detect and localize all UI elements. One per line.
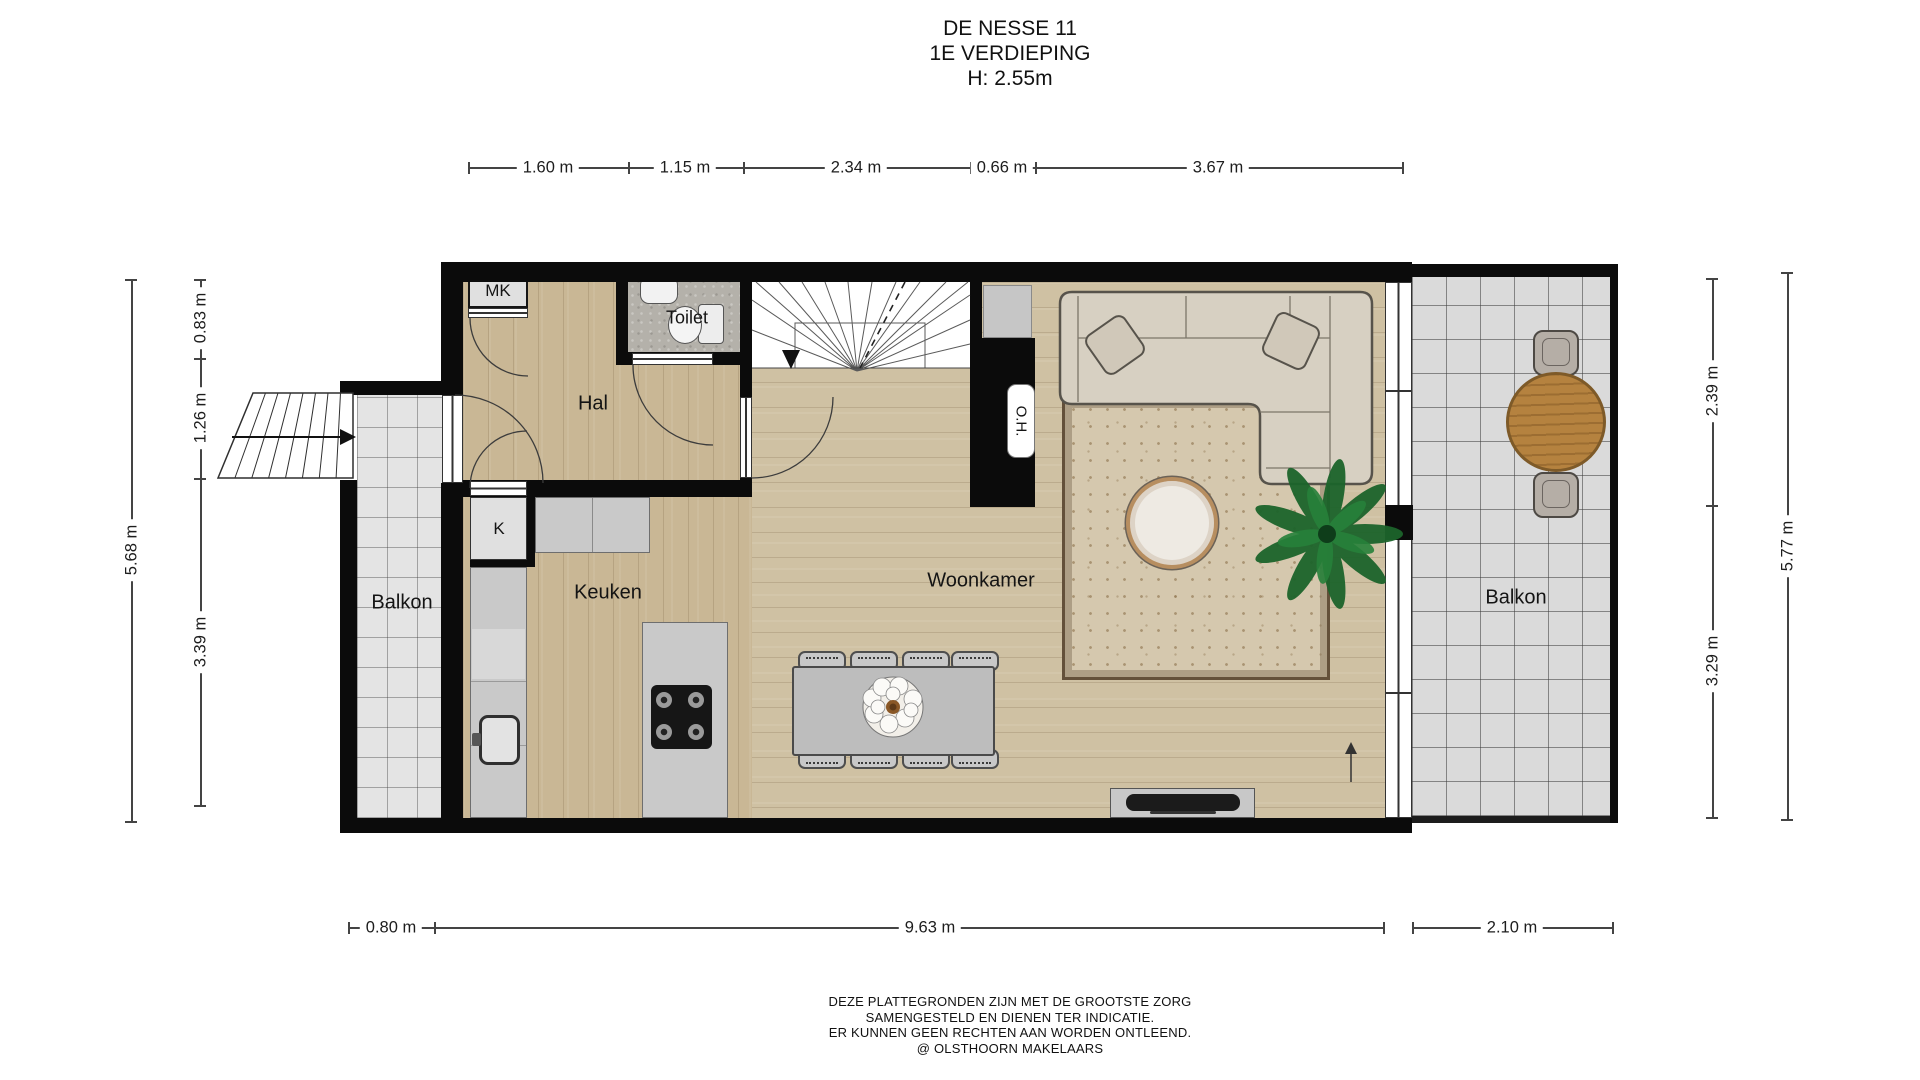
dim-right-outer: 5.77 m — [1779, 515, 1798, 577]
disclaimer-line: SAMENGESTELD EN DIENEN TER INDICATIE. — [829, 1010, 1192, 1026]
dim-top-1: 1.15 m — [654, 159, 716, 178]
floorplan-canvas: Hal Toilet Keuken Woonkamer Balkon Balko… — [0, 0, 1920, 1080]
wall-bottom — [340, 818, 1412, 833]
right-balcony-tiles — [1412, 277, 1610, 816]
dim-top-4: 3.67 m — [1187, 159, 1249, 178]
window-mullion-block — [1385, 505, 1413, 540]
room-label-toilet: Toilet — [666, 308, 708, 329]
toilet-door — [632, 353, 713, 365]
label-mk-closet: MK — [485, 281, 511, 301]
tv — [1126, 794, 1240, 811]
room-label-balkon-right: Balkon — [1485, 587, 1546, 610]
dim-tick — [1706, 505, 1718, 507]
dim-tick — [1706, 817, 1718, 819]
dim-tick — [628, 162, 630, 174]
room-label-hal: Hal — [578, 393, 608, 416]
dim-tick — [125, 279, 137, 281]
dim-tick — [194, 279, 206, 281]
burner — [688, 724, 704, 740]
dim-tick — [1781, 819, 1793, 821]
dim-left-inner-1: 1.26 m — [192, 387, 211, 449]
dim-line-top — [468, 167, 1402, 169]
dim-line-bottom-main — [348, 927, 1383, 929]
dim-top-3: 0.66 m — [971, 159, 1033, 178]
mk-closet-door — [468, 308, 528, 318]
balcony-door-left — [442, 395, 463, 483]
counter-top-divider — [592, 498, 593, 552]
dim-bottom-left: 0.80 m — [360, 919, 422, 938]
wall-left-lower — [441, 483, 463, 818]
wall-left-upper — [441, 262, 463, 395]
balcony-round-table — [1506, 372, 1606, 472]
dim-tick — [348, 922, 350, 934]
kitchen-door — [470, 481, 527, 496]
dim-tick — [194, 358, 206, 360]
right-balcony-edge-bottom — [1412, 816, 1610, 823]
dim-tick — [1035, 162, 1037, 174]
burner — [656, 692, 672, 708]
kitchen-sink — [479, 715, 520, 765]
dim-tick — [1383, 922, 1385, 934]
right-balcony-wall-top — [1412, 264, 1618, 277]
kitchen-counter-left — [470, 567, 527, 818]
dim-right-inner-1: 3.29 m — [1704, 630, 1723, 692]
window-wall-right — [1385, 282, 1412, 818]
dim-tick — [468, 162, 470, 174]
dim-bottom-right: 2.10 m — [1481, 919, 1543, 938]
stair-wall-right — [970, 282, 982, 338]
burner — [688, 692, 704, 708]
sink-faucet — [472, 733, 481, 746]
staircase-area — [752, 282, 970, 368]
window-frame-tick — [1385, 390, 1412, 392]
room-label-balkon-left: Balkon — [371, 592, 432, 615]
counter-divider — [471, 681, 526, 682]
dim-tick — [125, 821, 137, 823]
toilet-wall-right — [740, 282, 752, 397]
wall-top — [441, 262, 1412, 282]
dim-left-outer: 5.68 m — [123, 519, 142, 581]
dim-left-inner-2: 3.39 m — [192, 611, 211, 673]
dim-tick — [1612, 922, 1614, 934]
window-frame-tick — [1385, 692, 1412, 694]
balcony-chair — [1533, 330, 1579, 376]
dim-tick — [194, 805, 206, 807]
room-label-woonkamer: Woonkamer — [927, 570, 1034, 593]
title-floor: 1E VERDIEPING — [929, 41, 1090, 66]
dim-bottom-main: 9.63 m — [899, 919, 961, 938]
dim-top-2: 2.34 m — [825, 159, 887, 178]
burner — [656, 724, 672, 740]
disclaimer-line: ER KUNNEN GEEN RECHTEN AAN WORDEN ONTLEE… — [829, 1025, 1192, 1041]
hall-living-door — [740, 397, 752, 478]
label-k-closet: K — [493, 519, 504, 539]
oh-gray-closet — [983, 285, 1032, 338]
dim-right-inner-0: 2.39 m — [1704, 360, 1723, 422]
left-balcony-wall-top — [340, 381, 463, 395]
left-balcony-wall-left — [340, 480, 357, 833]
dim-tick — [194, 478, 206, 480]
disclaimer-line: @ OLSTHOORN MAKELAARS — [829, 1041, 1192, 1057]
k-closet-wall-bottom — [470, 560, 535, 567]
dim-tick — [1412, 922, 1414, 934]
tv-stand — [1150, 811, 1216, 814]
plan-title: DE NESSE 11 1E VERDIEPING H: 2.55m — [929, 16, 1090, 91]
dim-tick — [1402, 162, 1404, 174]
balcony-chair — [1533, 472, 1579, 518]
room-label-keuken: Keuken — [574, 582, 642, 605]
kitchen-counter-segment — [472, 629, 525, 679]
stairs-exterior — [218, 393, 356, 478]
title-address: DE NESSE 11 — [929, 16, 1090, 41]
disclaimer-line: DEZE PLATTEGRONDEN ZIJN MET DE GROOTSTE … — [829, 994, 1192, 1010]
disclaimer: DEZE PLATTEGRONDEN ZIJN MET DE GROOTSTE … — [829, 994, 1192, 1056]
dim-left-inner-0: 0.83 m — [192, 287, 211, 349]
dim-tick — [434, 922, 436, 934]
dim-tick — [1781, 272, 1793, 274]
dim-tick — [743, 162, 745, 174]
k-closet-wall-right — [527, 497, 535, 567]
coffee-table — [1126, 477, 1218, 569]
dim-top-0: 1.60 m — [517, 159, 579, 178]
dim-tick — [1706, 278, 1718, 280]
dining-table — [792, 666, 995, 756]
label-oh-unit: O.H. — [1013, 406, 1030, 437]
title-height: H: 2.55m — [929, 66, 1090, 91]
right-balcony-wall-right — [1610, 264, 1618, 823]
